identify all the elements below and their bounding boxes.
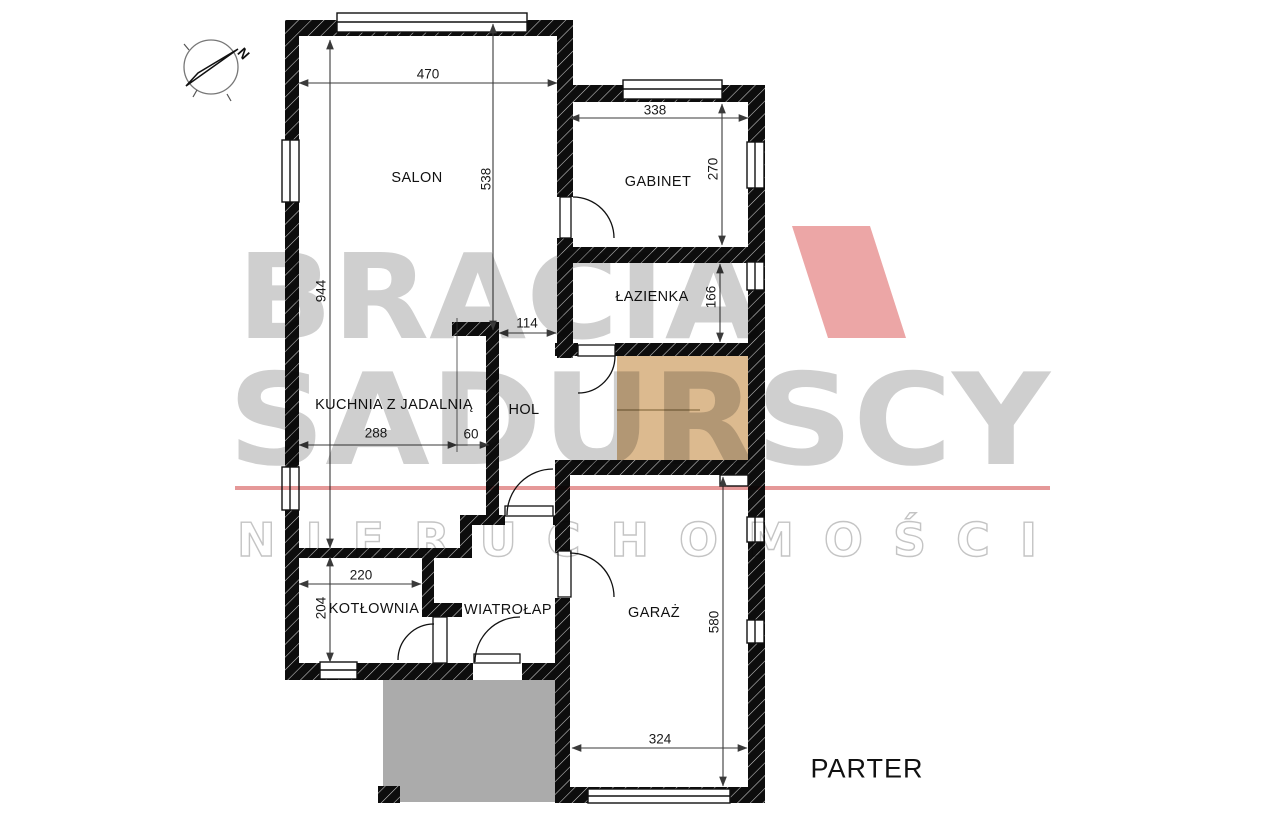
window bbox=[320, 662, 357, 679]
compass-ticks bbox=[184, 44, 231, 101]
door-kotlownia bbox=[398, 617, 447, 663]
floor-plan-page: N PARTER SALONGABINETŁAZIENKAKUCHNIA Z J… bbox=[0, 0, 1280, 820]
north-arrow-icon bbox=[186, 49, 238, 86]
floor-plan-drawing: N bbox=[0, 0, 1280, 820]
wall bbox=[573, 247, 748, 263]
compass-rose: N bbox=[184, 40, 253, 101]
door-hol-wiatrolap bbox=[505, 469, 553, 516]
wall bbox=[452, 322, 499, 336]
window bbox=[747, 517, 764, 542]
wall bbox=[378, 786, 400, 803]
wall bbox=[285, 548, 472, 558]
door-gabinet bbox=[560, 197, 614, 238]
window bbox=[337, 13, 527, 32]
wall bbox=[422, 548, 434, 610]
porch-area bbox=[383, 680, 558, 802]
window bbox=[747, 142, 764, 188]
window bbox=[623, 80, 722, 99]
door-entrance bbox=[474, 617, 520, 663]
door-wiatrolap-garaz bbox=[558, 551, 614, 597]
garage-door bbox=[588, 789, 730, 803]
wall bbox=[486, 336, 499, 515]
window bbox=[747, 620, 764, 643]
window bbox=[282, 140, 299, 202]
wall bbox=[748, 85, 765, 803]
window bbox=[282, 467, 299, 510]
wall-niche bbox=[720, 475, 748, 486]
window bbox=[747, 262, 764, 290]
wall bbox=[422, 603, 462, 617]
wall bbox=[555, 460, 765, 475]
door-lazienka bbox=[578, 345, 615, 393]
wall bbox=[555, 460, 570, 803]
wall bbox=[285, 20, 299, 680]
stairs-area bbox=[617, 356, 748, 460]
door-opening bbox=[473, 663, 522, 680]
